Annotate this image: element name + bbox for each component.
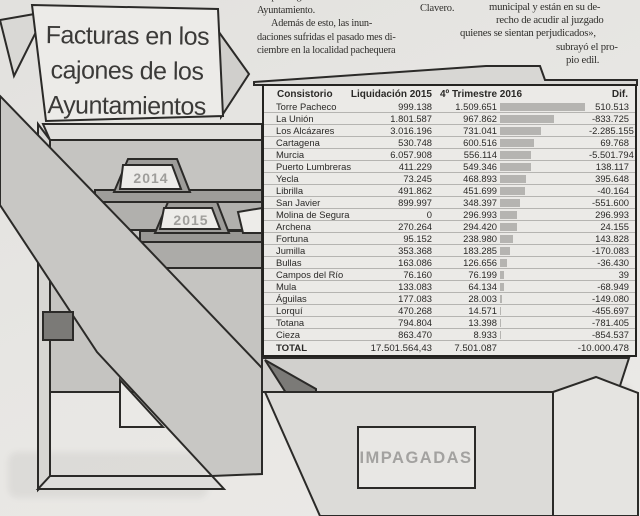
drawer-stamp-label: IMPAGADAS (359, 449, 472, 467)
value-bar (500, 139, 534, 147)
value-bar (500, 307, 501, 315)
cell-dif: -455.697 (589, 306, 635, 315)
cell-4-trimestre-2016: 1.509.651 (432, 102, 497, 111)
cell-dif: -149.080 (589, 294, 635, 303)
folder-blank-tab (238, 208, 262, 233)
cell-consistorio: Águilas (264, 294, 374, 303)
value-bar (500, 295, 502, 303)
table-row: Molina de Segura0296.993296.993 (264, 209, 635, 221)
value-bar (500, 247, 510, 255)
drawer-side-panel (553, 377, 638, 516)
table-row: San Javier899.997348.397-551.600 (264, 197, 635, 209)
cell-bar (497, 259, 589, 267)
cell-consistorio: Cartagena (264, 138, 374, 147)
cell-liquidacion-2015: 353.368 (374, 246, 432, 255)
total-liquidacion: 17.501.564,43 (371, 343, 432, 354)
table-row: Jumilla353.368183.285-170.083 (264, 245, 635, 257)
cell-bar (497, 115, 589, 123)
cell-liquidacion-2015: 1.801.587 (374, 114, 432, 123)
cell-consistorio: Librilla (264, 186, 374, 195)
folder-tab-2014-label: 2014 (133, 170, 168, 186)
cell-bar (497, 223, 589, 231)
cell-bar (497, 175, 589, 183)
cell-dif: -36.430 (589, 258, 635, 267)
cell-dif: 296.993 (589, 210, 635, 219)
title-line: Facturas en los (36, 18, 218, 55)
value-bar (500, 115, 554, 123)
cell-bar (497, 211, 589, 219)
cell-liquidacion-2015: 3.016.196 (374, 126, 432, 135)
cabinet-frame-bottom (38, 476, 224, 489)
cell-consistorio: Totana (264, 318, 374, 327)
cell-consistorio: Lorquí (264, 306, 374, 315)
cell-consistorio: Torre Pacheco (264, 102, 374, 111)
cell-liquidacion-2015: 899.997 (374, 198, 432, 207)
cell-consistorio: Los Alcázares (264, 126, 374, 135)
total-label: TOTAL (276, 343, 307, 354)
cell-4-trimestre-2016: 14.571 (432, 306, 497, 315)
table-row: Campos del Río76.16076.19939 (264, 269, 635, 281)
cell-liquidacion-2015: 0 (374, 210, 432, 219)
cell-liquidacion-2015: 491.862 (374, 186, 432, 195)
table-row: Los Alcázares3.016.196731.041-2.285.155 (264, 125, 635, 137)
cell-dif: 143.828 (589, 234, 635, 243)
title-line: cajones de los (36, 53, 218, 90)
value-bar (500, 271, 504, 279)
newspaper-scan: { "article": { "mid_column": { "lines": … (0, 0, 640, 516)
table-folder-tab (254, 66, 637, 85)
value-bar (500, 127, 541, 135)
cell-consistorio: Jumilla (264, 246, 374, 255)
table-row: Bullas163.086126.656-36.430 (264, 257, 635, 269)
cell-liquidacion-2015: 177.083 (374, 294, 432, 303)
cell-liquidacion-2015: 76.160 (374, 270, 432, 279)
table-row: Totana794.80413.398-781.405 (264, 317, 635, 329)
value-bar (500, 283, 504, 291)
cell-dif: -2.285.155 (589, 126, 640, 135)
cell-4-trimestre-2016: 64.134 (432, 282, 497, 291)
table-row: Fortuna95.152238.980143.828 (264, 233, 635, 245)
table-row: Mula133.08364.134-68.949 (264, 281, 635, 293)
cell-consistorio: Archena (264, 222, 374, 231)
cabinet-frame-top (43, 124, 262, 140)
header-consistorio: Consistorio (277, 89, 333, 100)
cell-4-trimestre-2016: 731.041 (432, 126, 497, 135)
header-4-trimestre-2016: 4º Trimestre 2016 (440, 89, 522, 100)
cell-consistorio: Mula (264, 282, 374, 291)
cell-liquidacion-2015: 530.748 (374, 138, 432, 147)
cell-liquidacion-2015: 163.086 (374, 258, 432, 267)
table-row: Librilla491.862451.699-40.164 (264, 185, 635, 197)
cell-liquidacion-2015: 794.804 (374, 318, 432, 327)
value-bar (500, 223, 517, 231)
cell-liquidacion-2015: 999.138 (374, 102, 432, 111)
cell-4-trimestre-2016: 296.993 (432, 210, 497, 219)
cell-dif: 39 (589, 270, 635, 279)
cell-bar (497, 127, 589, 135)
cell-consistorio: Bullas (264, 258, 374, 267)
cell-dif: 395.648 (589, 174, 635, 183)
table-row: Murcia6.057.908556.114-5.501.794 (264, 149, 635, 161)
cell-4-trimestre-2016: 8.933 (432, 330, 497, 339)
cell-bar (497, 319, 589, 327)
cell-liquidacion-2015: 411.229 (374, 162, 432, 171)
cell-4-trimestre-2016: 76.199 (432, 270, 497, 279)
cell-bar (497, 199, 589, 207)
value-bar (500, 175, 526, 183)
cell-liquidacion-2015: 6.057.908 (374, 150, 432, 159)
cell-dif: 69.768 (589, 138, 635, 147)
header-liquidacion-2015: Liquidación 2015 (351, 89, 432, 100)
cell-liquidacion-2015: 95.152 (374, 234, 432, 243)
cell-consistorio: Campos del Río (264, 270, 374, 279)
cell-4-trimestre-2016: 451.699 (432, 186, 497, 195)
cell-bar (497, 295, 589, 303)
cell-dif: -833.725 (589, 114, 635, 123)
cell-dif: -5.501.794 (589, 150, 640, 159)
cell-4-trimestre-2016: 549.346 (432, 162, 497, 171)
cell-dif: -551.600 (589, 198, 635, 207)
cell-liquidacion-2015: 270.264 (374, 222, 432, 231)
cell-bar (497, 247, 589, 255)
cell-consistorio: Fortuna (264, 234, 374, 243)
cell-bar (497, 151, 589, 159)
cell-consistorio: La Unión (264, 114, 374, 123)
table-row: Cieza863.4708.933-854.537 (264, 329, 635, 341)
cell-bar (497, 187, 589, 195)
cell-4-trimestre-2016: 13.398 (432, 318, 497, 327)
infographic-title: Facturas en los cajones de los Ayuntamie… (35, 18, 218, 125)
value-bar (500, 319, 501, 327)
table-row: Puerto Lumbreras411.229549.346138.117 (264, 161, 635, 173)
cell-bar (497, 139, 589, 147)
table-total-row: TOTAL 17.501.564,43 7.501.087 -10.000.47… (264, 341, 635, 354)
cell-liquidacion-2015: 73.245 (374, 174, 432, 183)
value-bar (500, 151, 531, 159)
cell-consistorio: San Javier (264, 198, 374, 207)
cell-dif: 138.117 (589, 162, 635, 171)
table-row: Lorquí470.26814.571-455.697 (264, 305, 635, 317)
cell-dif: -781.405 (589, 318, 635, 327)
cell-4-trimestre-2016: 238.980 (432, 234, 497, 243)
cell-bar (497, 283, 589, 291)
cell-dif: -68.949 (589, 282, 635, 291)
title-line: Ayuntamientos (35, 88, 217, 125)
cell-bar (497, 271, 589, 279)
cell-dif: -40.164 (589, 186, 635, 195)
cell-liquidacion-2015: 470.268 (374, 306, 432, 315)
cell-4-trimestre-2016: 28.003 (432, 294, 497, 303)
cell-bar (497, 331, 589, 339)
folder-tab-2015-label: 2015 (173, 212, 208, 228)
cell-4-trimestre-2016: 348.397 (432, 198, 497, 207)
cell-4-trimestre-2016: 183.285 (432, 246, 497, 255)
cell-4-trimestre-2016: 468.893 (432, 174, 497, 183)
cell-4-trimestre-2016: 294.420 (432, 222, 497, 231)
total-trimestre: 7.501.087 (454, 343, 497, 354)
municipal-invoices-table: Consistorio Liquidación 2015 4º Trimestr… (262, 84, 637, 357)
cell-consistorio: Yecla (264, 174, 374, 183)
cell-dif: -170.083 (589, 246, 635, 255)
cell-consistorio: Puerto Lumbreras (264, 162, 374, 171)
cell-4-trimestre-2016: 556.114 (432, 150, 497, 159)
table-row: Archena270.264294.42024.155 (264, 221, 635, 233)
table-rows: Torre Pacheco999.1381.509.651510.513La U… (264, 101, 635, 341)
header-dif: Dif. (612, 89, 628, 100)
value-bar (500, 259, 507, 267)
cell-consistorio: Molina de Segura (264, 210, 374, 219)
cell-dif: 24.155 (589, 222, 635, 231)
cell-dif: 510.513 (589, 102, 635, 111)
value-bar (500, 163, 531, 171)
cell-consistorio: Murcia (264, 150, 374, 159)
table-row: Yecla73.245468.893395.648 (264, 173, 635, 185)
cell-dif: -854.537 (589, 330, 635, 339)
value-bar (500, 331, 501, 339)
value-bar (500, 103, 585, 111)
value-bar (500, 235, 513, 243)
total-dif: -10.000.478 (578, 343, 629, 354)
value-bar (500, 199, 520, 207)
value-bar (500, 187, 525, 195)
cell-4-trimestre-2016: 126.656 (432, 258, 497, 267)
cell-liquidacion-2015: 863.470 (374, 330, 432, 339)
cell-4-trimestre-2016: 600.516 (432, 138, 497, 147)
cell-bar (497, 307, 589, 315)
cell-liquidacion-2015: 133.083 (374, 282, 432, 291)
cell-bar (497, 103, 589, 111)
table-row: Águilas177.08328.003-149.080 (264, 293, 635, 305)
cell-bar (497, 163, 589, 171)
shadow-notch (43, 312, 73, 340)
table-row: Cartagena530.748600.51669.768 (264, 137, 635, 149)
cell-consistorio: Cieza (264, 330, 374, 339)
cell-bar (497, 235, 589, 243)
table-row: Torre Pacheco999.1381.509.651510.513 (264, 101, 635, 113)
value-bar (500, 211, 517, 219)
table-row: La Unión1.801.587967.862-833.725 (264, 113, 635, 125)
cell-4-trimestre-2016: 967.862 (432, 114, 497, 123)
table-header: Consistorio Liquidación 2015 4º Trimestr… (264, 86, 635, 101)
